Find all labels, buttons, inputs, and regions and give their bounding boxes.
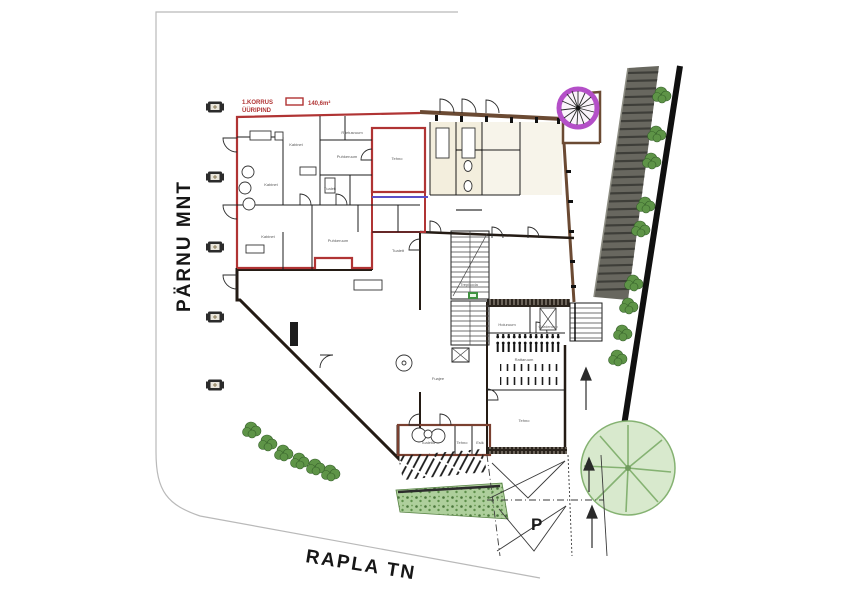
room-label-tehno: Tehno xyxy=(457,440,469,445)
tree-large xyxy=(581,421,675,515)
room-label-fuajee: Fuajee xyxy=(432,376,445,381)
ne-rooms-fill xyxy=(482,122,562,195)
legend-title-line1: 1.KORRUS xyxy=(242,100,273,106)
room-label-tehno: Tehno xyxy=(392,156,404,161)
bushes-southwest xyxy=(243,422,341,481)
room-label-puhkeruum: Puhkeruum xyxy=(337,154,358,159)
bike-rack-row-2 xyxy=(500,364,560,385)
exterior-stair xyxy=(570,303,602,341)
room-label-trepikoda: Trepikoda xyxy=(460,282,478,287)
building xyxy=(223,92,602,480)
parking-area: P xyxy=(487,368,607,556)
legend-area-value: 140,6m² xyxy=(308,100,330,107)
room-label-tehno: Tehno xyxy=(519,418,531,423)
room-label-kabinet: Kabinet xyxy=(289,142,303,147)
legend-lease-swatch xyxy=(286,98,303,105)
street-lamp-icons xyxy=(206,102,224,391)
street-lamp-icon xyxy=(206,312,224,323)
room-label-garderoob: Garderoob xyxy=(538,324,558,329)
bike-rack-row-1 xyxy=(494,334,562,352)
street-lamp-icon xyxy=(206,242,224,253)
room-label-rattaruum: Rattaruum xyxy=(515,357,534,362)
street-lamp-icon xyxy=(206,172,224,183)
west-south-wall xyxy=(237,268,398,458)
room-label-tualetid: Tualetid xyxy=(421,440,435,445)
spiral-stair xyxy=(559,89,597,127)
room-label-riietusruum: Riietusruum xyxy=(341,130,363,135)
room-label-tualett: Tualett xyxy=(392,248,405,253)
street-lamp-icon xyxy=(206,380,224,391)
room-label-tualett: Tualett xyxy=(324,186,337,191)
street-label-parnu-mnt: PÄRNU MNT xyxy=(174,180,195,312)
bike-rack-row-south xyxy=(398,449,487,480)
mid-horizontal-wall xyxy=(420,232,574,238)
south-wall-band xyxy=(487,447,567,454)
north-east-wall xyxy=(420,112,563,119)
site-plan-drawing: PÄRNU MNT RAPLA TN 1.KORRUS ÜÜRIPIND 140… xyxy=(0,0,842,595)
street-lamp-icon xyxy=(206,102,224,113)
room-label-puhkeruum: Puhkeruum xyxy=(328,238,349,243)
street-label-rapla-tn: RAPLA TN xyxy=(304,546,417,584)
legend-title-line2: ÜÜRIPIND xyxy=(242,107,272,114)
storage-wall-band xyxy=(487,299,570,307)
east-wall xyxy=(564,143,574,302)
exit-sign-glyph xyxy=(470,294,476,297)
room-label-kabinet: Kabinet xyxy=(264,182,278,187)
room-label-kabinet: Kabinet xyxy=(261,234,275,239)
site-plan-page: PÄRNU MNT RAPLA TN 1.KORRUS ÜÜRIPIND 140… xyxy=(0,0,842,595)
legend: 1.KORRUS ÜÜRIPIND 140,6m² xyxy=(242,98,330,114)
room-label-esik: Esik xyxy=(476,440,484,445)
parking-label: P xyxy=(531,515,542,534)
room-label-hoiuruum: Hoiuruum xyxy=(498,322,516,327)
